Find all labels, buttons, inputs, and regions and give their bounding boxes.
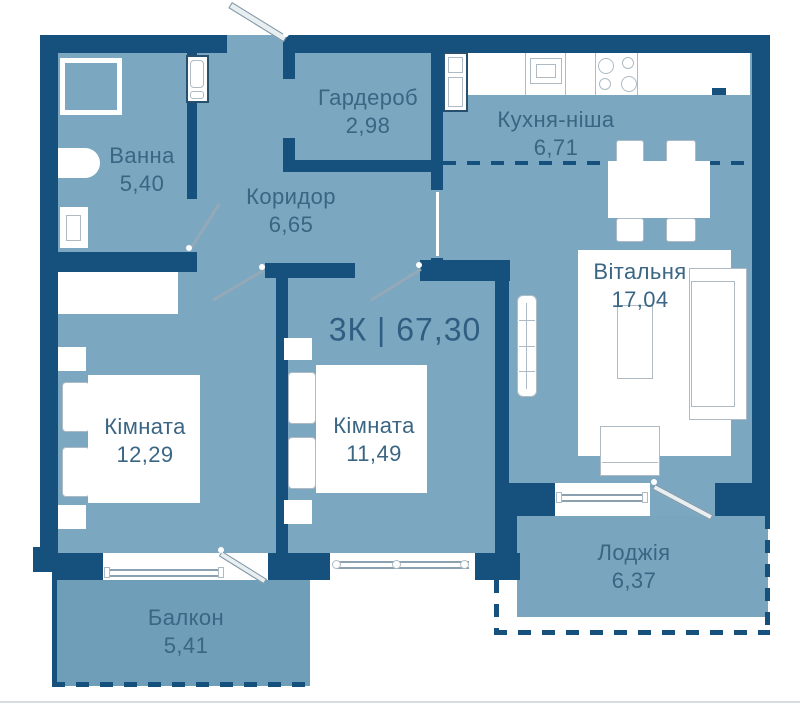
nightstand-icon <box>284 500 312 524</box>
window-cap-icon <box>556 492 562 503</box>
kitchen-counter <box>443 53 750 95</box>
fridge-freezer-icon <box>448 57 463 73</box>
room-name: Кухня-ніша <box>497 106 614 134</box>
radiator-line <box>519 371 535 372</box>
wall-left <box>40 35 58 572</box>
washing-machine-door-icon <box>190 91 204 99</box>
room-label-bathroom: Ванна 5,40 <box>109 142 174 198</box>
floor-plan: 3К | 67,30 Ванна 5,40 Гардероб 2,98 Кори… <box>0 0 800 717</box>
room-label-balcony: Балкон 5,41 <box>148 604 224 660</box>
pillow-icon <box>62 382 90 432</box>
counter-notch <box>712 88 726 95</box>
counter-divider <box>637 53 638 95</box>
door-hinge-dot <box>651 479 657 485</box>
window-handle-icon <box>460 560 469 569</box>
room-area: 11,49 <box>333 440 415 468</box>
window-handle-icon <box>332 560 341 569</box>
counter-divider <box>595 53 596 95</box>
room-area: 12,29 <box>104 441 186 469</box>
stove-burner-icon <box>621 76 637 92</box>
pillow-icon <box>288 437 316 489</box>
room-label-wardrobe: Гардероб 2,98 <box>318 84 418 140</box>
balcony-rail-bottom-dashed <box>52 682 310 687</box>
balcony-rail-left <box>52 580 57 686</box>
tv-stand-line <box>602 462 658 463</box>
plan-title: 3К | 67,30 <box>329 312 482 349</box>
wall-wardrobe-right <box>431 53 443 190</box>
room-area: 17,04 <box>593 286 686 314</box>
room-area: 2,98 <box>318 112 418 140</box>
room-label-living: Вітальня 17,04 <box>593 258 686 314</box>
window-cap-icon <box>104 567 110 578</box>
loggia-dashed-right <box>765 516 770 634</box>
loggia-window-icon <box>560 494 646 502</box>
wall-loggia-right-segment <box>715 483 770 516</box>
room-label-bedroom1: Кімната 12,29 <box>104 413 186 469</box>
loggia-dashed-left <box>494 580 499 632</box>
wall-partition-living <box>495 281 509 483</box>
toilet-bowl-icon <box>66 215 81 241</box>
room-label-loggia: Лоджія 6,37 <box>598 539 671 595</box>
window-cap-icon <box>218 567 224 578</box>
radiator-line <box>519 346 535 347</box>
room-area: 6,71 <box>497 134 614 162</box>
door-hinge-dot <box>283 31 289 37</box>
room-name: Балкон <box>148 604 224 632</box>
wall-bedrooms-top <box>265 263 355 278</box>
wall-top-left <box>40 35 227 53</box>
shower-icon <box>60 58 122 115</box>
corridor-kitchen-threshold <box>436 192 439 256</box>
counter-divider <box>525 53 526 95</box>
chair-icon <box>666 218 696 242</box>
radiator-line <box>519 320 535 321</box>
coffee-table-icon <box>617 305 653 379</box>
bedroom2-window-icon <box>337 561 469 569</box>
chair-icon <box>616 218 644 242</box>
stove-burner-icon <box>598 58 614 74</box>
wall-wardrobe-left-top <box>283 53 295 79</box>
radiator-line <box>526 303 527 389</box>
wall-corridor-living <box>420 260 510 281</box>
room-label-bedroom2: Кімната 11,49 <box>333 412 415 468</box>
fridge-door-icon <box>448 77 463 107</box>
room-label-corridor: Коридор 6,65 <box>246 183 336 239</box>
stove-burner-icon <box>599 78 611 90</box>
wall-balcony-left-segment <box>52 553 103 580</box>
wall-wardrobe-bottom <box>283 160 443 172</box>
nightstand-icon <box>284 338 312 360</box>
room-name: Кімната <box>333 412 415 440</box>
wall-balcony-mid-segment <box>268 553 330 580</box>
window-cap-icon <box>642 492 648 503</box>
wall-window-right-segment <box>475 553 520 580</box>
washing-machine-drum-icon <box>190 60 204 88</box>
counter-divider <box>565 53 566 95</box>
sofa-seat-icon <box>691 281 735 407</box>
door-hinge-dot <box>186 245 192 251</box>
door-hinge-dot <box>416 262 422 268</box>
room-name: Гардероб <box>318 84 418 112</box>
wall-bathroom-bottom <box>40 252 197 272</box>
wall-top-right <box>283 35 770 53</box>
room-area: 5,40 <box>109 170 174 198</box>
room-area: 5,41 <box>148 632 224 660</box>
wall-right <box>752 35 770 516</box>
door-hinge-dot <box>218 547 224 553</box>
window-handle-icon <box>392 560 401 569</box>
nightstand-icon <box>58 505 86 529</box>
room-area: 6,65 <box>246 211 336 239</box>
stove-burner-icon <box>622 57 634 69</box>
room-label-kitchen: Кухня-ніша 6,71 <box>497 106 614 162</box>
door-hinge-dot <box>259 264 265 270</box>
wall-loggia-left-segment <box>495 483 555 516</box>
room-name: Вітальня <box>593 258 686 286</box>
balcony-window-icon <box>108 569 222 577</box>
tv-stand-icon <box>600 426 660 476</box>
loggia-dashed-bottom <box>494 630 770 635</box>
wardrobe-cabinet-icon <box>58 272 178 314</box>
room-name: Лоджія <box>598 539 671 567</box>
dining-table-icon <box>608 161 710 218</box>
room-name: Ванна <box>109 142 174 170</box>
kitchen-sink-bowl-icon <box>536 64 556 78</box>
room-name: Кімната <box>104 413 186 441</box>
nightstand-icon <box>58 347 86 371</box>
room-area: 6,37 <box>598 567 671 595</box>
washbasin-icon <box>58 148 100 178</box>
room-name: Коридор <box>246 183 336 211</box>
pillow-icon <box>288 372 316 424</box>
pillow-icon <box>62 447 90 497</box>
page-divider <box>0 701 800 703</box>
